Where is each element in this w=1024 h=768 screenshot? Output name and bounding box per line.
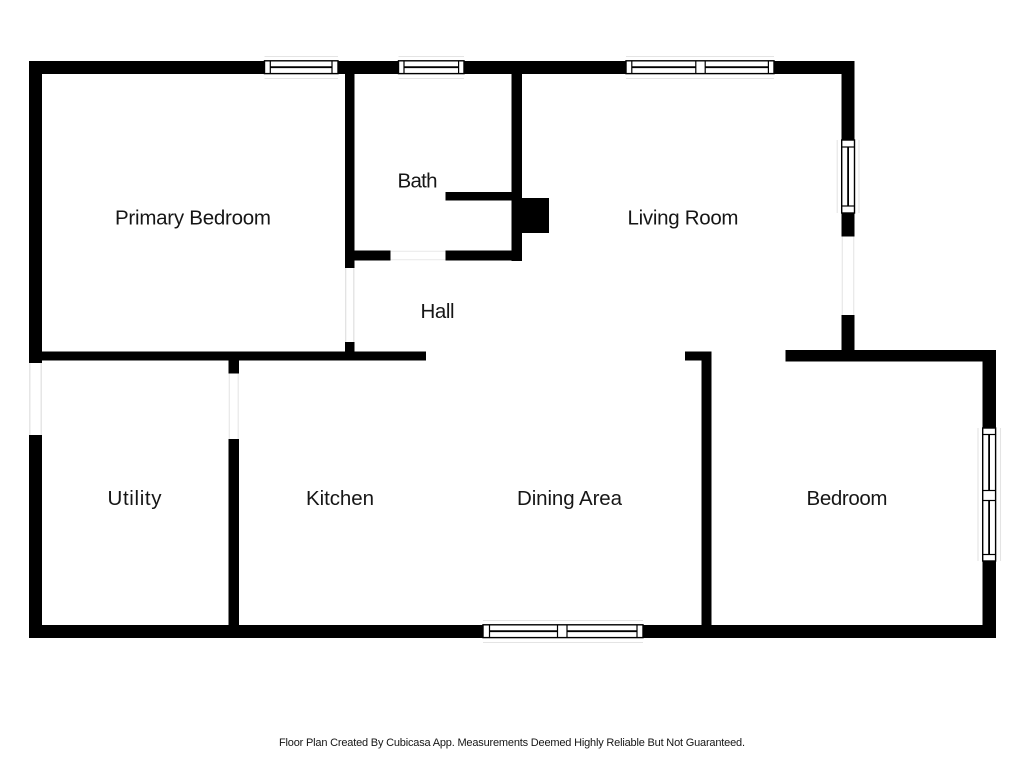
svg-text:Dining Area: Dining Area [517,487,623,510]
svg-text:Utility: Utility [108,487,163,510]
svg-text:Bedroom: Bedroom [807,487,888,510]
svg-text:Primary Bedroom: Primary Bedroom [115,207,271,230]
svg-text:Kitchen: Kitchen [306,487,374,510]
svg-text:Hall: Hall [421,300,455,323]
svg-text:Floor Plan Created By Cubicasa: Floor Plan Created By Cubicasa App. Meas… [279,737,745,749]
svg-text:Bath: Bath [398,170,438,193]
svg-text:Living Room: Living Room [628,207,739,230]
